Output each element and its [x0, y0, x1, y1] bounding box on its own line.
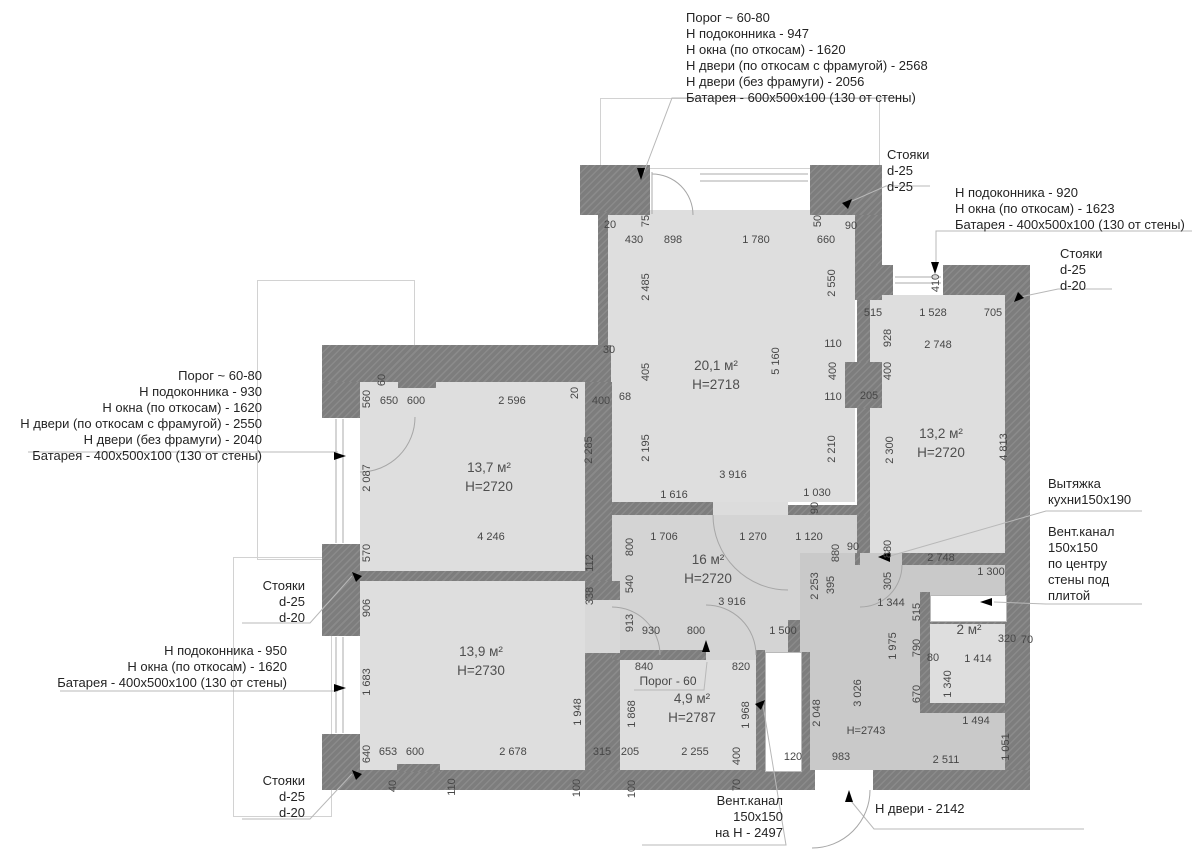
door-arc-13-9: [612, 607, 660, 655]
window-frames: [336, 172, 941, 733]
leader-lines: [28, 98, 1192, 845]
arrow-icon: [878, 552, 890, 562]
arrow-markers: [334, 168, 1024, 802]
door-arc-balcony-20-1: [652, 174, 693, 215]
arrow-icon: [334, 452, 346, 460]
arrow-icon: [980, 598, 992, 606]
door-arc-bathroom: [706, 605, 756, 655]
arrow-icon: [842, 199, 852, 209]
door-arcs: [360, 174, 902, 848]
door-arc-20-1: [713, 515, 788, 590]
arrow-icon: [352, 770, 362, 780]
door-arc-kitchen: [860, 565, 902, 607]
entrance-door-arc: [812, 790, 870, 848]
arrow-icon: [1014, 292, 1024, 302]
arrow-icon: [334, 684, 346, 692]
arrow-icon: [702, 640, 710, 652]
arrow-icon: [845, 790, 853, 802]
floor-plan: 560606506002 596204002 0872 2854 2465701…: [0, 0, 1200, 860]
arrow-icon: [931, 262, 939, 274]
arrow-icon: [352, 572, 362, 582]
arrow-icon: [637, 168, 645, 180]
plan-linework: [0, 0, 1200, 860]
door-arc-balcony-13-7: [360, 417, 415, 472]
